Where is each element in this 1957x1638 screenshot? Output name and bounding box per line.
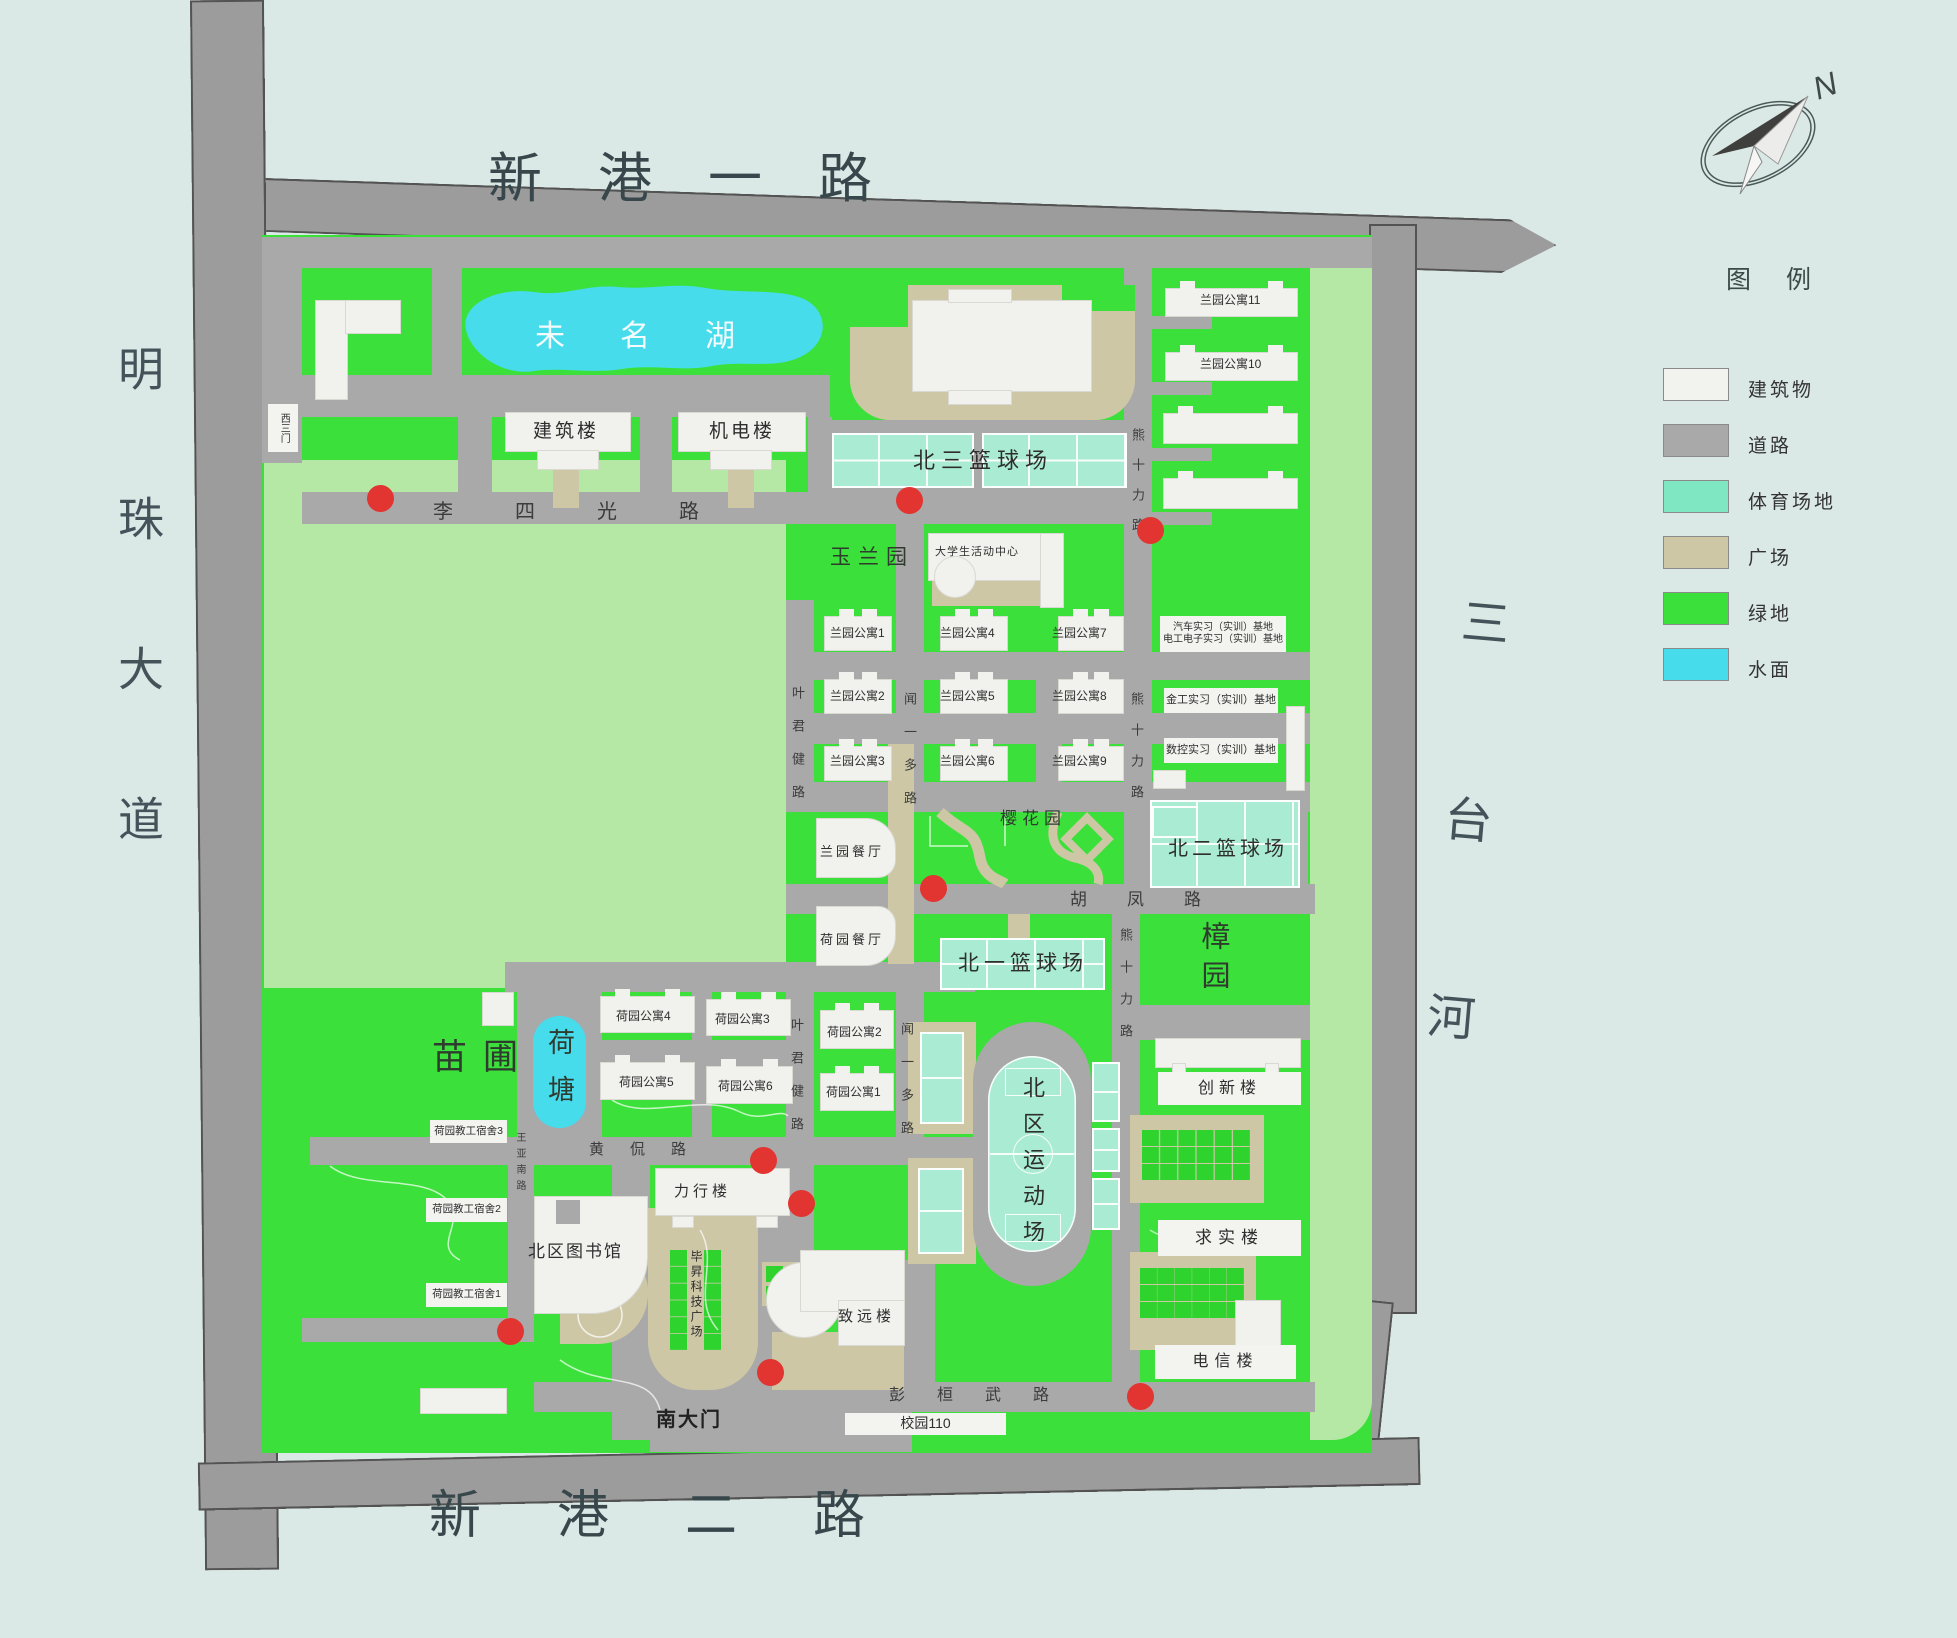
alarm-point [920, 875, 947, 902]
dianxin-label: 电信楼 [1192, 1352, 1258, 1372]
hedorm3-label: 荷园教工宿舍3 [434, 1125, 503, 1138]
bisheng-plaza [648, 1208, 758, 1390]
road-stub [1152, 382, 1212, 395]
bb1-label: 北一篮球场 [958, 953, 1088, 974]
road-segment [302, 375, 830, 417]
chuangxin-label: 创新楼 [1198, 1079, 1261, 1099]
lixing-building [672, 1216, 694, 1228]
alarm-point [788, 1190, 815, 1217]
alarm-point [367, 485, 394, 512]
tennis-court-south [918, 1168, 964, 1254]
dorm-building [1163, 478, 1298, 509]
south-gate-label: 南大门 [656, 1410, 722, 1430]
qiushi-label: 求实楼 [1195, 1227, 1264, 1248]
legend-swatch-sports [1663, 480, 1729, 513]
road-xiongshili-label: 熊十力路 [1119, 928, 1132, 1056]
road-wenyiduo-label: 闻一多路 [900, 1022, 913, 1154]
workshop-building [1286, 706, 1305, 791]
east-lawn-strip [1310, 240, 1372, 1440]
lan4-label: 兰园公寓4 [940, 627, 995, 639]
legend-swatch-plaza [1663, 536, 1729, 569]
jidianlou-label: 机电楼 [709, 422, 775, 441]
bb2-tennis-court [1152, 806, 1198, 838]
alarm-point [896, 487, 923, 514]
south-road-name: 新港二路 [429, 1490, 941, 1542]
side-court [1092, 1178, 1120, 1230]
metalwork-training-base: 金工实习（实训）基地 [1164, 688, 1278, 713]
chuangxin-label-box: 创新楼 [1158, 1072, 1301, 1105]
compass-north-letter: N [1808, 70, 1843, 107]
road-stub [1152, 316, 1212, 329]
auditorium-building [948, 390, 1012, 405]
road-segment [1112, 1005, 1310, 1040]
road-penghuanwu-label: 彭桓武路 [889, 1388, 1081, 1404]
he3-label: 荷园公寓3 [715, 1013, 770, 1025]
activity-center-building [934, 556, 976, 598]
southwest-building [420, 1388, 507, 1414]
alarm-point [750, 1147, 777, 1174]
lan3-label: 兰园公寓3 [830, 755, 885, 767]
zhang-garden-label: 樟园 [1198, 921, 1227, 999]
lan9-label: 兰园公寓9 [1052, 755, 1107, 767]
northwest-building [315, 300, 348, 400]
lan10-label: 兰园公寓10 [1200, 358, 1261, 370]
road-stub [1152, 448, 1212, 461]
auto-training-base: 汽车实习（实训）基地 电工电子实习（实训）基地 [1160, 616, 1286, 652]
lan8-label: 兰园公寓8 [1052, 690, 1107, 702]
bb1-walk [1008, 914, 1030, 940]
campus110-label: 校园110 [900, 1415, 950, 1433]
jianzhulou-label: 建筑楼 [533, 422, 599, 441]
lixing-building [756, 1216, 778, 1228]
campus-map: 汽车实习（实训）基地 电工电子实习（实训）基地 金工实习（实训）基地 数控实习（… [0, 0, 1957, 1638]
legend-label-building: 建筑物 [1748, 375, 1814, 402]
jidianlou-building [710, 450, 772, 470]
miaopu-label: 苗圃 [432, 1040, 534, 1075]
plaza-trees [704, 1250, 725, 1350]
bb2-label: 北二篮球场 [1168, 839, 1288, 859]
north-road-name: 新港一路 [488, 152, 928, 206]
building-roof-grid [1140, 1268, 1244, 1318]
lan-canteen-label: 兰园餐厅 [820, 845, 884, 858]
road-segment [432, 268, 462, 378]
qiushi-building: 求实楼 [1158, 1220, 1301, 1256]
legend-label-green: 绿地 [1748, 599, 1792, 626]
compass: N [1680, 70, 1860, 205]
dianxin-building: 电信楼 [1155, 1345, 1296, 1379]
he-canteen-label: 荷园餐厅 [820, 933, 884, 946]
legend-swatch-road [1663, 424, 1729, 457]
nursery-shed [482, 992, 514, 1026]
lan7-label: 兰园公寓7 [1052, 627, 1107, 639]
legend-label-plaza: 广场 [1748, 543, 1792, 570]
hedorm2-building: 荷园教工宿舍2 [426, 1198, 507, 1222]
side-court [1092, 1062, 1120, 1122]
side-court [1092, 1128, 1120, 1172]
activity-center-label: 大学生活动中心 [935, 547, 1019, 558]
cnc-training-base: 数控实习（实训）基地 [1164, 738, 1278, 763]
road-segment [905, 1260, 935, 1390]
lixing-label: 力行楼 [674, 1184, 731, 1199]
auditorium-building [948, 289, 1012, 303]
road-lisiguang-label: 李四光路 [433, 502, 761, 522]
plaza-green-notch [850, 285, 908, 327]
west-avenue-name: 明珠大道 [115, 345, 161, 945]
alarm-point [1137, 517, 1164, 544]
legend-swatch-building [1663, 368, 1729, 401]
lan1-label: 兰园公寓1 [830, 627, 885, 639]
yinghua-garden-label: 樱花园 [1000, 810, 1066, 827]
road-yejunjian-label: 叶君健路 [790, 1018, 803, 1150]
he5-label: 荷园公寓5 [619, 1076, 674, 1088]
alarm-point [1127, 1383, 1154, 1410]
workshop-building [1153, 770, 1186, 789]
compass-needle-tail [1740, 146, 1762, 194]
legend-title: 图 例 [1726, 268, 1825, 293]
road-hufeng-label: 胡凤路 [1070, 891, 1241, 908]
activity-center-building [1040, 533, 1064, 608]
west-lawn [264, 460, 786, 988]
lan5-label: 兰园公寓5 [940, 690, 995, 702]
road-segment [814, 652, 1310, 680]
yulan-garden-label: 玉兰园 [830, 547, 914, 568]
hedorm3-building: 荷园教工宿舍3 [430, 1120, 507, 1143]
hedorm1-label: 荷园教工宿舍1 [432, 1288, 501, 1301]
tennis-court-north [920, 1032, 964, 1124]
hedorm2-label: 荷园教工宿舍2 [432, 1203, 501, 1216]
alarm-point [757, 1359, 784, 1386]
road-huangkan-label: 黄侃路 [589, 1142, 712, 1157]
hedorm1-building: 荷园教工宿舍1 [426, 1283, 507, 1307]
he4-label: 荷园公寓4 [616, 1010, 671, 1022]
road-wangyanan-label: 王亚南路 [514, 1132, 524, 1196]
library-courtyard [556, 1200, 580, 1224]
legend-label-water: 水面 [1748, 655, 1792, 682]
northwest-building [345, 300, 401, 334]
jianzhulou-building [537, 450, 599, 470]
lan6-label: 兰园公寓6 [940, 755, 995, 767]
road-wenyiduo-label: 闻一多路 [903, 692, 916, 824]
he1-label: 荷园公寓1 [826, 1086, 881, 1098]
ring-road-north [262, 237, 1372, 268]
lake-label: 未名湖 [535, 322, 790, 352]
library-label: 北区图书馆 [528, 1243, 623, 1260]
dorm-building [1163, 413, 1298, 444]
he2-label: 荷园公寓2 [827, 1026, 882, 1038]
road-yejunjian-label: 叶君健路 [791, 686, 804, 818]
pond-label: 荷塘 [545, 1028, 572, 1122]
legend-label-sports: 体育场地 [1748, 487, 1836, 514]
plaza-trees [670, 1250, 691, 1350]
lan11-label: 兰园公寓11 [1200, 294, 1260, 306]
building-roof-grid [1142, 1130, 1250, 1180]
metalwork-training-label: 金工实习（实训）基地 [1166, 694, 1276, 708]
zhiyuan-label: 致远楼 [838, 1309, 895, 1324]
lan2-label: 兰园公寓2 [830, 690, 885, 702]
east-river-name: 三台河 [1406, 595, 1506, 1191]
west-gate-label: 西三门 [277, 413, 290, 443]
legend-swatch-water [1663, 648, 1729, 681]
cnc-training-label: 数控实习（实训）基地 [1166, 744, 1276, 758]
legend-swatch-green [1663, 592, 1729, 625]
west-gate: 西三门 [268, 404, 298, 452]
bisheng-plaza-label: 毕昇科技广场 [690, 1250, 702, 1340]
auto-training-label: 汽车实习（实训）基地 [1173, 622, 1273, 635]
alarm-point [497, 1318, 524, 1345]
he6-label: 荷园公寓6 [718, 1080, 773, 1092]
road-xiongshili-label: 熊十力路 [1130, 692, 1143, 816]
bb3-label: 北三篮球场 [913, 450, 1053, 472]
auditorium-building [912, 300, 1092, 392]
legend-label-road: 道路 [1748, 431, 1792, 458]
electric-training-label: 电工电子实习（实训）基地 [1163, 634, 1283, 647]
dianxin-wing [1235, 1300, 1281, 1346]
stadium-label: 北区运动场 [1021, 1076, 1043, 1256]
campus110-building: 校园110 [845, 1413, 1006, 1435]
